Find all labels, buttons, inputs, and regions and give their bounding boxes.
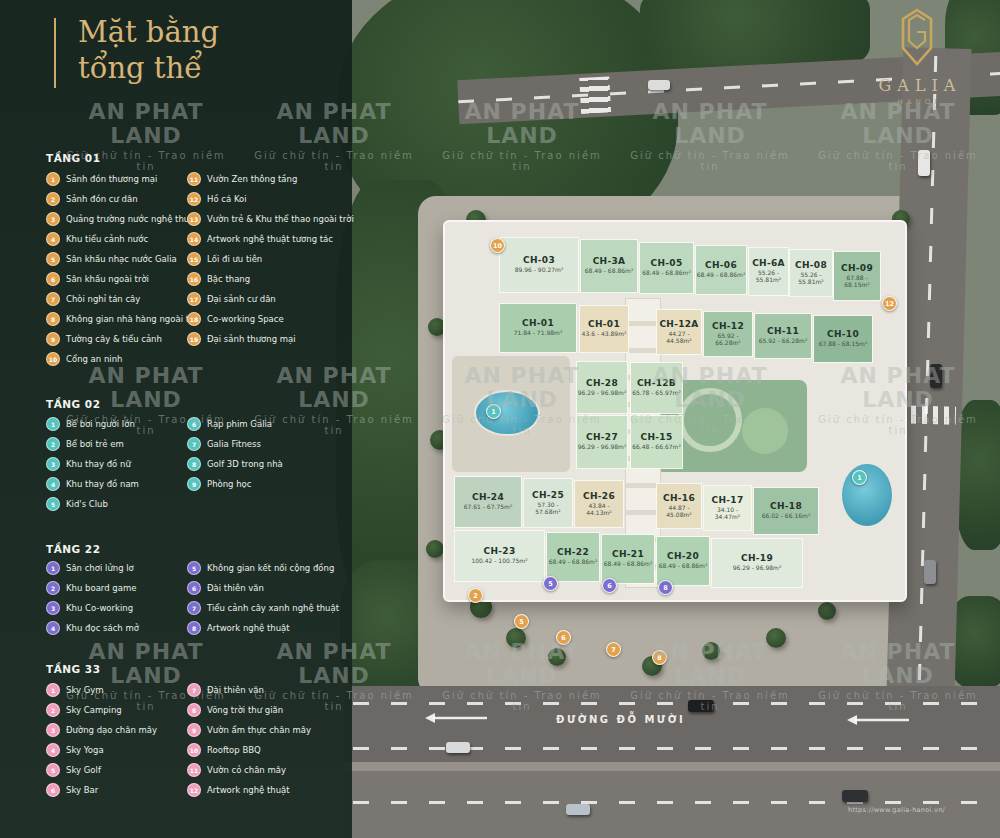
legend-number-badge: 7 [187, 683, 201, 697]
unit-area-label: 96.29 - 96.98m² [578, 443, 627, 450]
legend-number-badge: 14 [187, 232, 201, 246]
legend-item-label: Co-working Space [207, 314, 284, 324]
road-bottom-2 [345, 771, 1000, 838]
legend-item-label: Galia Fitness [207, 439, 261, 449]
legend-item: 3Khu Co-working [46, 601, 133, 615]
unit-ch-11: CH-1165.92 - 66.28m² [755, 314, 811, 358]
legend-item: 10Cổng an ninh [46, 352, 122, 366]
unit-ch-01: CH-0143.6 - 43.89m² [580, 306, 628, 352]
legend-item-label: Artwork nghệ thuật [207, 785, 290, 795]
unit-area-label: 55.26 - 55.81m² [790, 271, 832, 285]
legend-item: 2Khu board game [46, 581, 136, 595]
website-url[interactable]: https://www.galia-hanoi.vn/ [848, 806, 945, 814]
legend-item: 1Sân chơi lửng lơ [46, 561, 134, 575]
legend-item: 6Sân khấu ngoài trời [46, 272, 149, 286]
legend-item-label: Sky Golf [66, 765, 101, 775]
unit-id-label: CH-24 [472, 493, 504, 503]
legend-number-badge: 6 [46, 272, 60, 286]
unit-ch-26: CH-2643.84 - 44.13m² [575, 481, 623, 527]
legend-item: 13Vườn trẻ & Khu thể thao ngoài trời [187, 212, 354, 226]
unit-area-label: 65.78 - 65.97m² [632, 389, 681, 396]
legend-number-badge: 1 [46, 561, 60, 575]
courtyard-ring [678, 388, 742, 452]
road-median [345, 762, 1000, 771]
legend-item: 19Đại sảnh thương mại [187, 332, 296, 346]
unit-ch-23: CH-23100.42 - 100.75m² [455, 531, 544, 581]
unit-area-label: 68.49 - 68.86m² [604, 560, 653, 567]
legend-item: 14Artwork nghệ thuật tương tác [187, 232, 333, 246]
car-icon [930, 364, 942, 388]
map-marker: 5 [514, 614, 529, 629]
map-marker: 10 [490, 238, 505, 253]
legend-number-badge: 1 [46, 417, 60, 431]
unit-id-label: CH-01 [522, 319, 554, 329]
legend-item: 9Vườn ẩm thực chân mây [187, 723, 311, 737]
legend-item: 11Vườn Zen thông tầng [187, 172, 297, 186]
legend-item: 15Lối đi ưu tiên [187, 252, 262, 266]
legend-item-label: Sân chơi lửng lơ [66, 563, 134, 573]
legend-item-label: Không gian nhà hàng ngoài trời [66, 314, 200, 324]
legend-item: 7Galia Fitness [187, 437, 261, 451]
masterplan-poster: ĐƯỜNG ĐỖ MƯỜI https://www.galia-hanoi.vn… [0, 0, 1000, 838]
legend-item-label: Tường cây & tiểu cảnh [66, 334, 162, 344]
unit-id-label: CH-15 [641, 433, 673, 443]
unit-ch-3a: CH-3A68.49 - 68.86m² [581, 240, 637, 292]
legend-number-badge: 2 [46, 192, 60, 206]
legend-number-badge: 3 [46, 212, 60, 226]
legend-item: 9Phòng học [187, 477, 251, 491]
legend-item-label: Rooftop BBQ [207, 745, 261, 755]
legend-number-badge: 5 [187, 561, 201, 575]
legend-number-badge: 8 [46, 312, 60, 326]
unit-ch-05: CH-0568.49 - 68.86m² [640, 243, 693, 293]
legend-number-badge: 4 [46, 232, 60, 246]
legend-item-label: Võng trời thư giãn [207, 705, 283, 715]
unit-id-label: CH-12A [659, 320, 698, 330]
unit-id-label: CH-08 [795, 261, 827, 271]
unit-ch-12: CH-1265.92 - 66.28m² [704, 312, 752, 356]
legend-number-badge: 19 [187, 332, 201, 346]
floor-section-title-tang-22: TẦNG 22 [46, 543, 100, 555]
legend-number-badge: 6 [187, 417, 201, 431]
legend-item-label: Quảng trường nước nghệ thuật [66, 214, 198, 224]
legend-item-label: Sky Camping [66, 705, 122, 715]
legend-item: 8Artwork nghệ thuật [187, 621, 290, 635]
legend-item-label: Khu đọc sách mở [66, 623, 139, 633]
legend-number-badge: 9 [187, 477, 201, 491]
map-marker: 1 [486, 404, 501, 419]
unit-id-label: CH-01 [588, 320, 620, 330]
unit-id-label: CH-27 [586, 433, 618, 443]
floor-section-title-tang-01: TẦNG 01 [46, 152, 100, 164]
unit-id-label: CH-10 [827, 330, 859, 340]
legend-number-badge: 4 [46, 621, 60, 635]
unit-area-label: 68.49 - 68.86m² [549, 558, 598, 565]
swimming-pool-right [840, 462, 894, 528]
logo-city-text: HANOI [872, 98, 962, 106]
unit-id-label: CH-03 [523, 256, 555, 266]
unit-area-label: 67.61 - 67.75m² [464, 503, 513, 510]
legend-number-badge: 10 [46, 352, 60, 366]
unit-ch-10: CH-1067.88 - 68.15m² [814, 316, 872, 362]
legend-number-badge: 12 [187, 192, 201, 206]
logo-brand-text: GALIA [872, 76, 962, 95]
unit-id-label: CH-25 [532, 491, 564, 501]
legend-item-label: Bể bơi người lớn [66, 419, 135, 429]
legend-item-label: Sảnh đón thương mại [66, 174, 157, 184]
tree-icon [766, 628, 786, 648]
legend-item: 6Sky Bar [46, 783, 98, 797]
unit-area-label: 34.10 - 34.47m² [704, 506, 751, 520]
map-marker: 8 [658, 580, 673, 595]
legend-item: 4Khu thay đồ nam [46, 477, 139, 491]
unit-area-label: 71.84 - 71.98m² [514, 329, 563, 336]
legend-number-badge: 11 [187, 763, 201, 777]
car-icon [446, 742, 470, 753]
legend-number-badge: 3 [46, 457, 60, 471]
legend-item: 7Đài thiên văn [187, 683, 264, 697]
legend-item-label: Sky Bar [66, 785, 98, 795]
unit-area-label: 66.02 - 66.16m² [762, 512, 811, 519]
legend-item-label: Khu thay đồ nữ [66, 459, 131, 469]
legend-item-label: Chòi nghỉ tán cây [66, 294, 140, 304]
legend-item: 7Tiểu cảnh cây xanh nghệ thuật [187, 601, 339, 615]
legend-item: 6Đài thiên văn [187, 581, 264, 595]
legend-item-label: Sân khấu ngoài trời [66, 274, 149, 284]
street-name-label: ĐƯỜNG ĐỖ MƯỜI [556, 714, 685, 725]
unit-id-label: CH-21 [612, 550, 644, 560]
unit-area-label: 96.29 - 96.98m² [578, 389, 627, 396]
legend-item: 5Sân khấu nhạc nước Galia [46, 252, 177, 266]
car-icon [924, 560, 936, 584]
unit-ch-27: CH-2796.29 - 96.98m² [577, 416, 627, 468]
legend-number-badge: 1 [46, 683, 60, 697]
unit-ch-20: CH-2068.49 - 68.86m² [657, 537, 709, 585]
legend-item-label: Sảnh đón cư dân [66, 194, 138, 204]
unit-ch-09: CH-0967.88 - 68.15m² [834, 252, 880, 300]
unit-ch-6a: CH-6A55.26 - 55.81m² [749, 248, 788, 295]
unit-area-label: 68.49 - 68.86m² [585, 267, 634, 274]
unit-id-label: CH-22 [557, 548, 589, 558]
unit-area-label: 68.49 - 68.86m² [659, 562, 708, 569]
unit-ch-16: CH-1644.87 - 45.08m² [657, 484, 701, 528]
legend-item: 3Quảng trường nước nghệ thuật [46, 212, 198, 226]
unit-area-label: 96.29 - 96.98m² [733, 564, 782, 571]
legend-item-label: Cổng an ninh [66, 354, 122, 364]
unit-ch-12a: CH-12A44.27 - 44.58m² [657, 310, 701, 354]
unit-id-label: CH-6A [752, 259, 785, 269]
legend-item-label: Vườn cỏ chân mây [207, 765, 286, 775]
map-marker: 1 [852, 470, 867, 485]
unit-area-label: 67.88 - 68.15m² [834, 274, 880, 288]
legend-number-badge: 2 [46, 437, 60, 451]
legend-number-badge: 8 [187, 703, 201, 717]
legend-number-badge: 8 [187, 621, 201, 635]
legend-item: 4Khu tiểu cảnh nước [46, 232, 148, 246]
legend-item: 8Võng trời thư giãn [187, 703, 283, 717]
galia-emblem-icon [901, 8, 933, 66]
unit-id-label: CH-26 [583, 492, 615, 502]
unit-ch-06: CH-0668.49 - 68.86m² [696, 246, 746, 294]
legend-number-badge: 17 [187, 292, 201, 306]
legend-item: 5Sky Golf [46, 763, 101, 777]
tree-icon [426, 540, 444, 558]
unit-area-label: 43.6 - 43.89m² [582, 330, 627, 337]
map-marker: 5 [543, 576, 558, 591]
page-title-line1: Mặt bằng [78, 14, 219, 50]
legend-item: 9Tường cây & tiểu cảnh [46, 332, 162, 346]
legend-item-label: Kid's Club [66, 499, 108, 509]
legend-item-label: Sky Gym [66, 685, 104, 695]
legend-item: 2Sky Camping [46, 703, 122, 717]
legend-item-label: Vườn trẻ & Khu thể thao ngoài trời [207, 214, 354, 224]
legend-item: 17Đại sảnh cư dân [187, 292, 276, 306]
legend-item-label: Artwork nghệ thuật [207, 623, 290, 633]
legend-item: 1Sảnh đón thương mại [46, 172, 157, 186]
unit-id-label: CH-17 [712, 496, 744, 506]
car-icon [918, 150, 930, 176]
legend-number-badge: 4 [46, 743, 60, 757]
legend-number-badge: 6 [46, 783, 60, 797]
unit-area-label: 89.96 - 90.27m² [515, 266, 564, 273]
unit-ch-25: CH-2557.30 - 57.68m² [524, 479, 572, 527]
legend-item: 1Sky Gym [46, 683, 104, 697]
legend-item-label: Sân khấu nhạc nước Galia [66, 254, 177, 264]
floor-section-title-tang-02: TẦNG 02 [46, 398, 100, 410]
legend-item: 3Khu thay đồ nữ [46, 457, 131, 471]
unit-area-label: 57.30 - 57.68m² [524, 501, 572, 515]
legend-item: 1Bể bơi người lớn [46, 417, 135, 431]
legend-item-label: Đài thiên văn [207, 583, 264, 593]
swimming-pool-left [474, 390, 540, 436]
unit-area-label: 66.48 - 66.67m² [632, 443, 681, 450]
legend-number-badge: 5 [46, 763, 60, 777]
page-title-line2: tổng thể [78, 50, 219, 86]
legend-number-badge: 2 [46, 581, 60, 595]
legend-number-badge: 12 [187, 783, 201, 797]
legend-item: 4Khu đọc sách mở [46, 621, 139, 635]
legend-number-badge: 13 [187, 212, 201, 226]
floor-section-title-tang-33: TẦNG 33 [46, 663, 100, 675]
courtyard-lawn [742, 408, 788, 454]
legend-number-badge: 11 [187, 172, 201, 186]
legend-number-badge: 2 [46, 703, 60, 717]
unit-area-label: 68.49 - 68.86m² [697, 271, 746, 278]
legend-item: 4Sky Yoga [46, 743, 104, 757]
unit-ch-28: CH-2896.29 - 96.98m² [577, 362, 627, 413]
legend-item-label: Bể bơi trẻ em [66, 439, 124, 449]
unit-ch-19: CH-1996.29 - 96.98m² [712, 539, 802, 587]
legend-item: 3Đường dạo chân mây [46, 723, 157, 737]
page-title: Mặt bằng tổng thể [78, 14, 219, 87]
unit-id-label: CH-05 [651, 259, 683, 269]
legend-item-label: Khu thay đồ nam [66, 479, 139, 489]
legend-number-badge: 7 [187, 437, 201, 451]
legend-item-label: Hồ cá Koi [207, 194, 247, 204]
project-logo: GALIA HANOI [872, 8, 962, 106]
tree-icon [818, 602, 836, 620]
forest-right-mid [955, 400, 1000, 550]
unit-area-label: 65.92 - 66.28m² [704, 332, 752, 346]
legend-item-label: Lối đi ưu tiên [207, 254, 262, 264]
unit-ch-01: CH-0171.84 - 71.98m² [500, 304, 576, 352]
legend-item-label: Khu tiểu cảnh nước [66, 234, 148, 244]
unit-id-label: CH-23 [484, 547, 516, 557]
unit-ch-22: CH-2268.49 - 68.86m² [547, 533, 599, 581]
unit-id-label: CH-19 [741, 554, 773, 564]
unit-ch-08: CH-0855.26 - 55.81m² [790, 250, 832, 296]
unit-area-label: 43.84 - 44.13m² [575, 502, 623, 516]
unit-id-label: CH-12B [637, 379, 676, 389]
unit-ch-12b: CH-12B65.78 - 65.97m² [631, 363, 682, 413]
legend-number-badge: 6 [187, 581, 201, 595]
legend-item: 12Artwork nghệ thuật [187, 783, 290, 797]
unit-ch-15: CH-1566.48 - 66.67m² [631, 416, 682, 468]
legend-item-label: Tiểu cảnh cây xanh nghệ thuật [207, 603, 339, 613]
car-icon [566, 804, 590, 815]
legend-item-label: Phòng học [207, 479, 251, 489]
unit-area-label: 65.92 - 66.28m² [759, 337, 808, 344]
legend-item: 10Rooftop BBQ [187, 743, 261, 757]
title-rule [54, 18, 56, 88]
unit-area-label: 68.49 - 68.86m² [642, 269, 691, 276]
unit-id-label: CH-09 [841, 264, 873, 274]
unit-area-label: 44.27 - 44.58m² [657, 330, 701, 344]
legend-number-badge: 5 [46, 497, 60, 511]
unit-area-label: 67.88 - 68.15m² [819, 340, 868, 347]
unit-area-label: 100.42 - 100.75m² [471, 557, 527, 564]
legend-item-label: Vườn Zen thông tầng [207, 174, 297, 184]
tree-icon [548, 648, 566, 666]
legend-item-label: Đại sảnh thương mại [207, 334, 296, 344]
unit-ch-18: CH-1866.02 - 66.16m² [754, 488, 818, 534]
legend-item-label: Khu Co-working [66, 603, 133, 613]
road-bottom [345, 686, 1000, 766]
legend-number-badge: 5 [46, 252, 60, 266]
tree-icon [702, 642, 720, 660]
legend-item: 2Bể bơi trẻ em [46, 437, 124, 451]
car-icon [648, 80, 670, 90]
legend-item: 11Vườn cỏ chân mây [187, 763, 286, 777]
legend-item-label: Không gian kết nối cộng đồng [207, 563, 334, 573]
unit-ch-03: CH-0389.96 - 90.27m² [500, 238, 578, 292]
legend-item-label: Khu board game [66, 583, 136, 593]
legend-item: 16Bậc thang [187, 272, 250, 286]
legend-number-badge: 3 [46, 601, 60, 615]
map-marker: 8 [652, 650, 667, 665]
legend-item-label: Đường dạo chân mây [66, 725, 157, 735]
legend-item-label: Golf 3D trong nhà [207, 459, 283, 469]
car-icon [688, 700, 714, 712]
legend-item-label: Đại sảnh cư dân [207, 294, 276, 304]
legend-number-badge: 8 [187, 457, 201, 471]
unit-id-label: CH-18 [770, 502, 802, 512]
legend-number-badge: 15 [187, 252, 201, 266]
legend-item-label: Bậc thang [207, 274, 250, 284]
legend-number-badge: 18 [187, 312, 201, 326]
map-marker: 6 [602, 578, 617, 593]
legend-item-label: Vườn ẩm thực chân mây [207, 725, 311, 735]
legend-item-label: Rạp phim Galia [207, 419, 272, 429]
unit-area-label: 55.26 - 55.81m² [749, 269, 788, 283]
unit-id-label: CH-16 [663, 494, 695, 504]
legend-item-label: Artwork nghệ thuật tương tác [207, 234, 333, 244]
legend-number-badge: 16 [187, 272, 201, 286]
unit-ch-24: CH-2467.61 - 67.75m² [455, 477, 521, 527]
legend-item: 2Sảnh đón cư dân [46, 192, 138, 206]
unit-id-label: CH-28 [586, 379, 618, 389]
map-marker: 6 [556, 630, 571, 645]
legend-item: 12Hồ cá Koi [187, 192, 247, 206]
legend-number-badge: 7 [187, 601, 201, 615]
left-arrow-icon [423, 712, 489, 724]
legend-item: 5Kid's Club [46, 497, 108, 511]
unit-id-label: CH-11 [767, 327, 799, 337]
unit-area-label: 44.87 - 45.08m² [657, 504, 701, 518]
legend-item: 6Rạp phim Galia [187, 417, 272, 431]
legend-item: 7Chòi nghỉ tán cây [46, 292, 140, 306]
legend-item-label: Đài thiên văn [207, 685, 264, 695]
map-marker: 7 [606, 642, 621, 657]
legend-item-label: Sky Yoga [66, 745, 104, 755]
legend-item: 18Co-working Space [187, 312, 284, 326]
legend-number-badge: 4 [46, 477, 60, 491]
legend-number-badge: 10 [187, 743, 201, 757]
map-marker: 2 [468, 588, 483, 603]
legend-number-badge: 1 [46, 172, 60, 186]
map-marker: 12 [882, 296, 897, 311]
legend-item: 8Không gian nhà hàng ngoài trời [46, 312, 200, 326]
unit-id-label: CH-06 [705, 261, 737, 271]
unit-id-label: CH-12 [712, 322, 744, 332]
unit-ch-17: CH-1734.10 - 34.47m² [704, 486, 751, 530]
legend-item: 5Không gian kết nối cộng đồng [187, 561, 334, 575]
unit-ch-21: CH-2168.49 - 68.86m² [602, 535, 654, 583]
legend-sidebar: Mặt bằng tổng thể TẦNG 011Sảnh đón thươn… [0, 0, 352, 838]
legend-item: 8Golf 3D trong nhà [187, 457, 283, 471]
legend-number-badge: 7 [46, 292, 60, 306]
tree-icon [506, 628, 526, 648]
legend-number-badge: 3 [46, 723, 60, 737]
unit-id-label: CH-3A [593, 257, 626, 267]
unit-id-label: CH-20 [667, 552, 699, 562]
legend-number-badge: 9 [46, 332, 60, 346]
right-arrow-icon [845, 714, 911, 726]
legend-number-badge: 9 [187, 723, 201, 737]
car-icon [842, 790, 868, 802]
